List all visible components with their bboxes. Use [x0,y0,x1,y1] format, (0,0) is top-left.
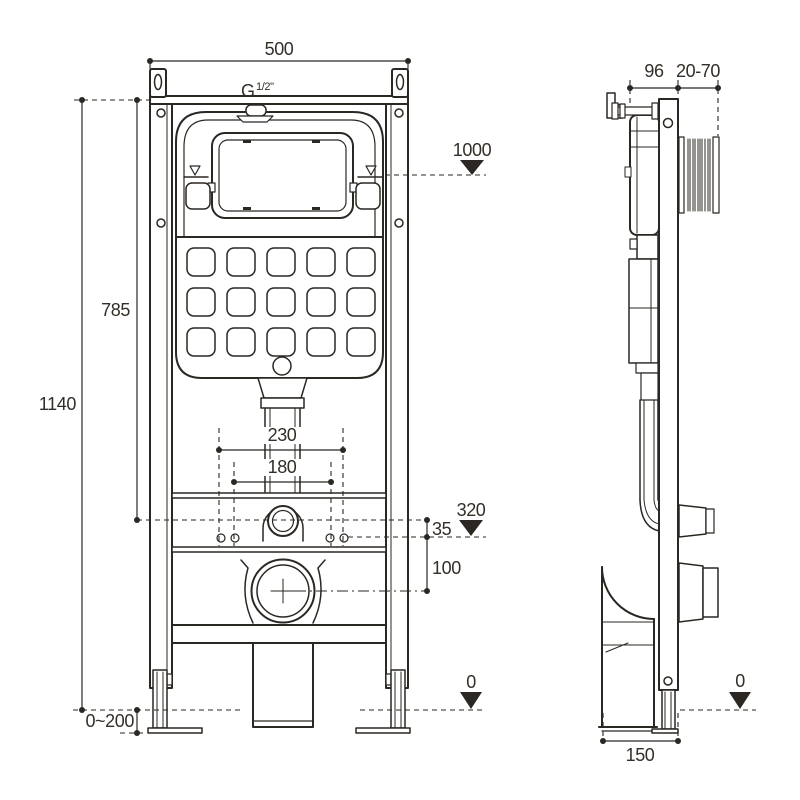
dim-base-depth: 150 [626,745,655,765]
inlet-cap [246,105,266,116]
dim-floor-level-side: 0 [735,671,745,691]
thread-size-label: 1/2" [256,81,274,93]
dim-fixing-inner: 180 [268,457,297,477]
adjustable-foot-left [153,670,167,728]
side-wall-bracket [607,93,659,119]
outlet-stub [679,563,703,622]
dim-total-height: 1140 [39,394,76,414]
thread-label: G [241,81,255,101]
drawing-canvas: 500 G 1/2" 1140 785 1000 230 180 320 35 [0,0,800,800]
dim-flush-plate-level: 1000 [453,140,492,160]
front-base [148,643,410,733]
level-marker-floor-front [460,692,482,709]
front-view [148,69,410,733]
level-marker-320 [459,520,483,536]
technical-drawing: 500 G 1/2" 1140 785 1000 230 180 320 35 [0,0,800,800]
adjustable-foot-right [391,670,405,728]
level-marker-1000 [460,160,484,175]
dim-fixing-outer: 230 [268,425,297,445]
waste-box [253,643,313,727]
dim-inlet-level: 320 [457,500,486,520]
dim-foot-adjust: 0~200 [85,711,134,731]
side-view [599,93,719,733]
dim-top-depth: 96 [644,61,664,81]
dim-inlet-offset: 35 [432,519,452,539]
side-flush-pipe [640,400,659,531]
access-window [212,133,353,218]
level-marker-floor-side [729,692,751,709]
front-waste-outlet [241,560,325,624]
inlet-stub [679,505,706,537]
side-waste-bend [599,567,657,731]
dim-tank-height: 785 [101,300,130,320]
dim-wall-distance: 20-70 [676,61,720,81]
side-wall-hatch [679,137,719,213]
front-cistern [176,105,383,378]
dim-outlet-offset: 100 [432,558,461,578]
side-connection-stubs [679,505,718,622]
water-level-mark-left [190,166,200,175]
side-cistern [625,115,659,400]
dim-frame-width: 500 [265,39,294,59]
dim-floor-level-front: 0 [466,672,476,692]
front-water-inlet [217,506,348,542]
side-frame-rail [659,99,678,690]
